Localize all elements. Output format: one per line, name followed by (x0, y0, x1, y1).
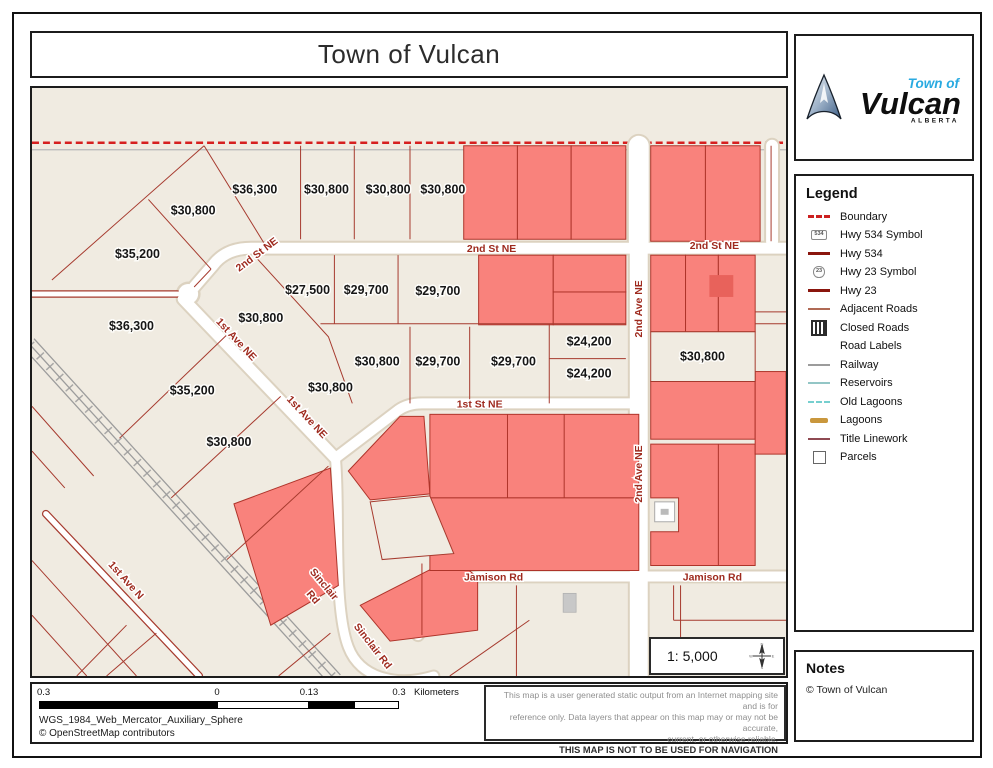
logo-alberta: ALBERTA (911, 117, 959, 124)
map-image: $36,300$30,800$35,200$30,800$30,800$30,8… (32, 88, 786, 676)
parcel-price-label: $35,200 (170, 383, 215, 397)
attribution-text: © OpenStreetMap contributors (39, 728, 175, 739)
legend-item-label: Parcels (840, 451, 877, 463)
lagoons-icon (806, 414, 832, 427)
legend-item-closed-roads: Closed Roads (806, 321, 966, 334)
parcel-price-label: $30,800 (308, 380, 353, 394)
notes-panel: Notes © Town of Vulcan (794, 650, 974, 742)
logo-box: Town of Vulcan ALBERTA (794, 34, 974, 161)
legend-item-label: Lagoons (840, 414, 882, 426)
disclaimer-line: current, or otherwise reliable. (490, 734, 778, 745)
reservoirs-icon (806, 377, 832, 390)
parcel-price-label: $30,800 (207, 435, 252, 449)
legend-item-label: Hwy 23 Symbol (840, 266, 916, 278)
scalebar-unit: Kilometers (414, 687, 459, 698)
legend-item-label: Title Linework (840, 433, 907, 445)
legend-item-hwy23: Hwy 23 (806, 284, 966, 297)
legend-item-label: Railway (840, 359, 879, 371)
boundary-icon (806, 210, 832, 223)
legend-item-label: Hwy 534 Symbol (840, 229, 923, 241)
svg-text:W: W (749, 654, 753, 659)
disclaimer-box: This map is a user generated static outp… (484, 685, 786, 741)
legend-item-old-lagoons: Old Lagoons (806, 395, 966, 408)
parcel-price-label: $29,700 (491, 355, 536, 369)
logo-vulcan: Vulcan (860, 86, 961, 121)
parcel-price-label: $24,200 (567, 335, 612, 349)
scalebar-label-1: 0 (214, 687, 219, 698)
delta-icon (807, 75, 841, 119)
scalebar (39, 701, 399, 709)
svg-text:N: N (761, 643, 764, 647)
street-name-label: Jamison Rd (464, 572, 523, 583)
parcel-price-label: $24,200 (567, 367, 612, 381)
svg-text:E: E (772, 654, 775, 659)
scale-ratio-text: 1: 5,000 (667, 648, 749, 664)
parcel-price-label: $35,200 (115, 247, 160, 261)
legend-item-label: Closed Roads (840, 322, 909, 334)
disclaimer-line: reference only. Data layers that appear … (490, 712, 778, 734)
disclaimer-bold-line: THIS MAP IS NOT TO BE USED FOR NAVIGATIO… (490, 745, 778, 756)
parcel-price-label: $30,800 (304, 183, 349, 197)
parcel-price-label: $29,700 (415, 284, 460, 298)
legend-item-road-labels: Road Labels (806, 340, 966, 353)
scalebar-label-3: 0.3 (392, 687, 405, 698)
vulcan-logo: Town of Vulcan ALBERTA (804, 71, 964, 125)
legend-item-adjacent-roads: Adjacent Roads (806, 303, 966, 316)
legend-item-label: Old Lagoons (840, 396, 902, 408)
street-name-label: 2nd St NE (690, 241, 739, 252)
legend-item-label: Road Labels (840, 340, 902, 352)
hwy23-symbol-icon: 23 (806, 266, 832, 279)
railway-icon (806, 358, 832, 371)
legend-item-railway: Railway (806, 358, 966, 371)
legend-item-lagoons: Lagoons (806, 414, 966, 427)
parcel-price-label: $30,800 (355, 355, 400, 369)
legend-item-label: Hwy 534 (840, 248, 883, 260)
street-name-label: 2nd St NE (467, 244, 516, 255)
parcel-price-label: $36,300 (109, 319, 154, 333)
legend-item-reservoirs: Reservoirs (806, 377, 966, 390)
street-name-label: 2nd Ave NE (634, 445, 645, 502)
map-title-box: Town of Vulcan (30, 31, 788, 78)
parcel-price-label: $30,800 (171, 203, 216, 217)
legend-items: Boundary534Hwy 534 SymbolHwy 53423Hwy 23… (806, 210, 966, 464)
projection-text: WGS_1984_Web_Mercator_Auxiliary_Sphere (39, 715, 243, 726)
map-canvas: $36,300$30,800$35,200$30,800$30,800$30,8… (30, 86, 788, 678)
compass-icon: NESW (749, 643, 775, 669)
parcel-price-label: $29,700 (344, 283, 389, 297)
parcel-price-label: $30,800 (680, 350, 725, 364)
scalebar-label-2: 0.13 (300, 687, 319, 698)
legend-item-label: Reservoirs (840, 377, 893, 389)
legend-panel: Legend Boundary534Hwy 534 SymbolHwy 5342… (794, 174, 974, 632)
bottom-strip: 0.3 0 0.13 0.3 Kilometers WGS_1984_Web_M… (30, 682, 788, 744)
page-root: { "page": { "title": "Town of Vulcan" },… (0, 0, 993, 768)
legend-item-boundary: Boundary (806, 210, 966, 223)
svg-text:S: S (761, 665, 764, 669)
legend-heading: Legend (806, 186, 966, 202)
disclaimer-line: This map is a user generated static outp… (490, 690, 778, 712)
legend-item-label: Boundary (840, 211, 887, 223)
notes-body: © Town of Vulcan (806, 684, 962, 696)
hwy534-icon (806, 247, 832, 260)
parcel-price-label: $30,800 (366, 183, 411, 197)
title-linework-icon (806, 432, 832, 445)
street-name-label: 2nd Ave NE (634, 280, 645, 337)
notes-heading: Notes (806, 660, 962, 676)
legend-item-hwy23-symbol: 23Hwy 23 Symbol (806, 266, 966, 279)
old-lagoons-icon (806, 395, 832, 408)
parcels-icon (806, 451, 832, 464)
legend-item-parcels: Parcels (806, 451, 966, 464)
road-labels-icon (806, 340, 832, 353)
hwy23-icon (806, 284, 832, 297)
parcel-price-label: $27,500 (285, 283, 330, 297)
parcel-price-label: $30,800 (420, 183, 465, 197)
page-border: Town of Vulcan (12, 12, 982, 758)
street-name-label: Jamison Rd (683, 572, 742, 583)
page-title: Town of Vulcan (318, 39, 500, 70)
parcel-price-label: $36,300 (232, 183, 277, 197)
scale-ratio-box: 1: 5,000 NESW (649, 637, 785, 675)
adjacent-roads-icon (806, 303, 832, 316)
closed-roads-icon (806, 321, 832, 334)
legend-item-label: Hwy 23 (840, 285, 877, 297)
legend-item-label: Adjacent Roads (840, 303, 918, 315)
parcel-price-label: $30,800 (238, 311, 283, 325)
scalebar-label-0: 0.3 (37, 687, 50, 698)
parcel-price-label: $29,700 (415, 355, 460, 369)
legend-item-hwy534: Hwy 534 (806, 247, 966, 260)
street-name-label: 1st St NE (457, 399, 503, 410)
legend-item-title-linework: Title Linework (806, 432, 966, 445)
hwy534-symbol-icon: 534 (806, 229, 832, 242)
legend-item-hwy534-symbol: 534Hwy 534 Symbol (806, 229, 966, 242)
